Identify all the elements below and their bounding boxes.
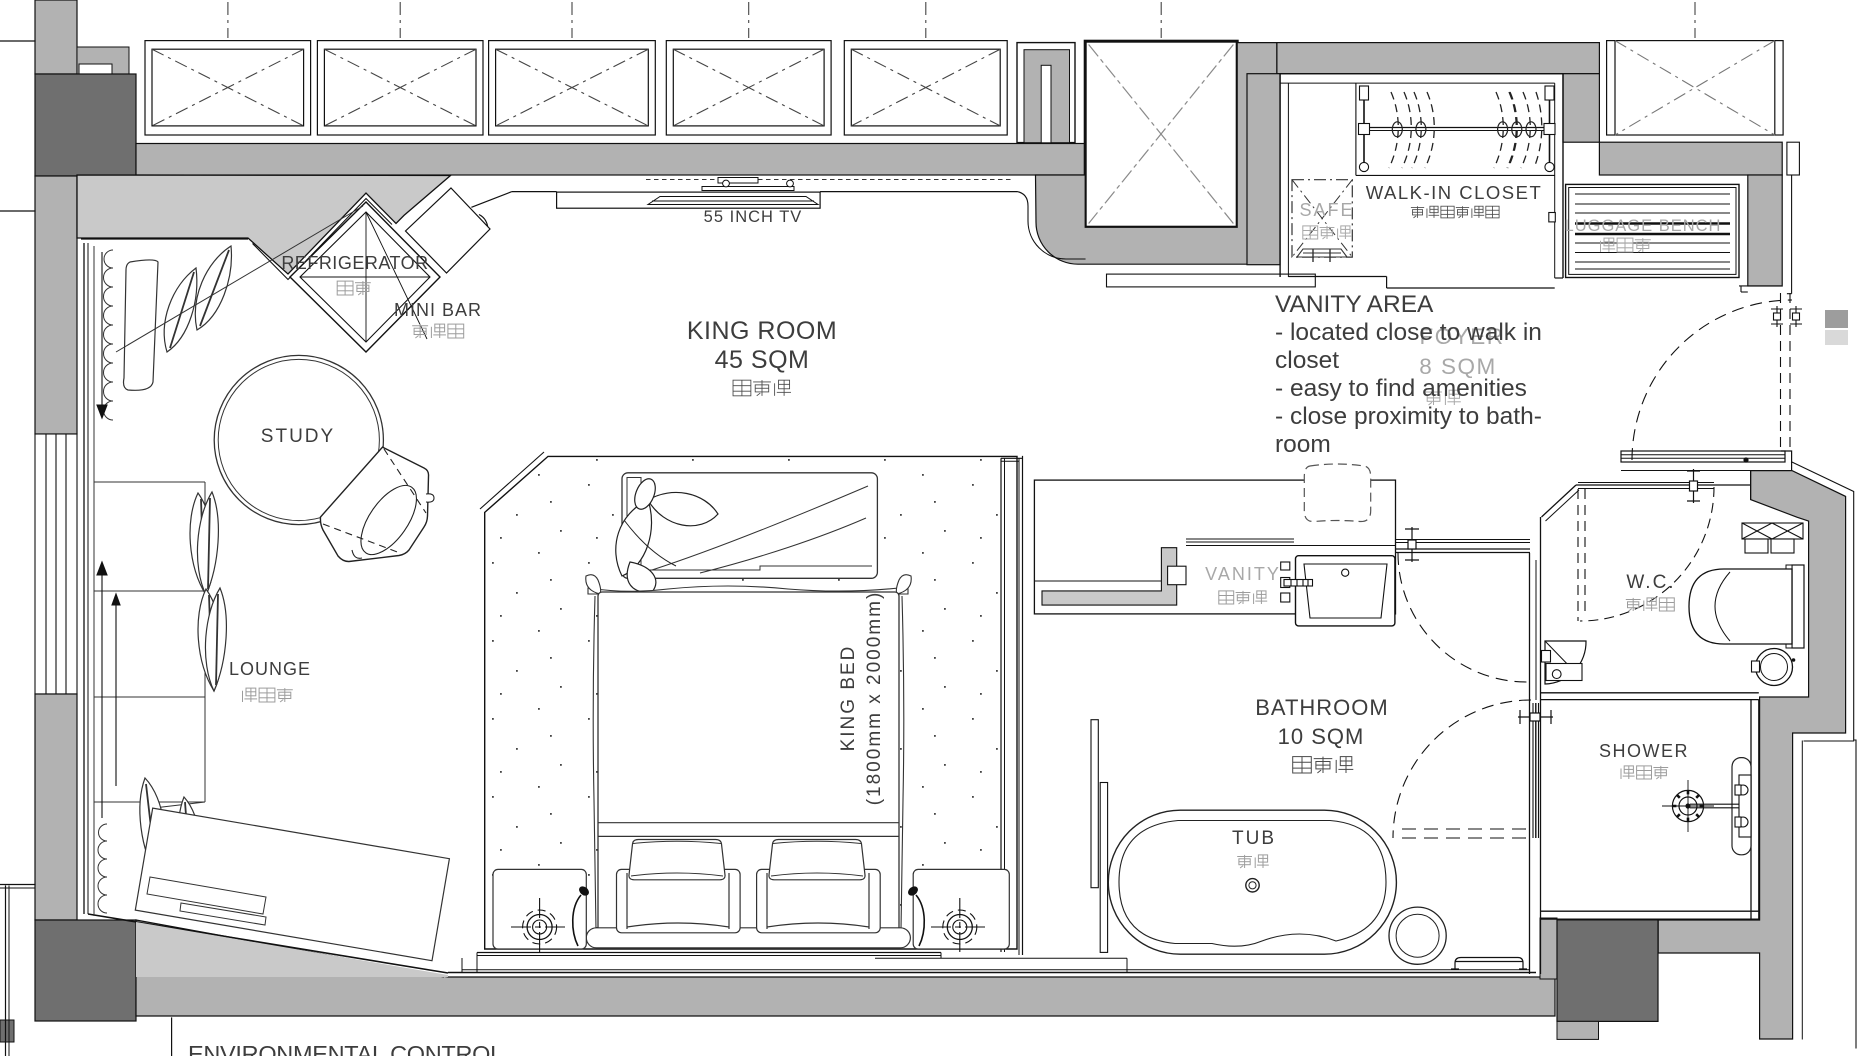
svg-text:- located close to walk in: - located close to walk in — [1275, 319, 1542, 346]
svg-text:BATHROOM: BATHROOM — [1255, 695, 1388, 720]
svg-text:W.C.: W.C. — [1626, 572, 1675, 593]
svg-text:- easy to find amenities: - easy to find amenities — [1275, 375, 1527, 402]
svg-text:room: room — [1275, 431, 1331, 458]
svg-text:LUGGAGE BENCH: LUGGAGE BENCH — [1565, 217, 1722, 235]
svg-text:(1800mm x 2000mm): (1800mm x 2000mm) — [864, 591, 885, 806]
svg-text:45 SQM: 45 SQM — [715, 346, 810, 374]
svg-text:STUDY: STUDY — [261, 426, 335, 447]
svg-text:ENVIRONMENTAL CONTROL: ENVIRONMENTAL CONTROL — [188, 1041, 503, 1056]
svg-text:WALK-IN CLOSET: WALK-IN CLOSET — [1366, 182, 1543, 203]
svg-text:- close proximity to bath-: - close proximity to bath- — [1275, 403, 1542, 430]
svg-text:10 SQM: 10 SQM — [1278, 724, 1365, 749]
svg-text:55 INCH TV: 55 INCH TV — [704, 208, 803, 226]
svg-text:closet: closet — [1275, 347, 1339, 374]
svg-text:VANITY: VANITY — [1205, 564, 1281, 584]
svg-text:KING BED: KING BED — [838, 645, 859, 752]
svg-text:REFRIGERATOR: REFRIGERATOR — [281, 253, 428, 273]
svg-text:SAFE: SAFE — [1299, 200, 1354, 220]
svg-text:MINI BAR: MINI BAR — [394, 300, 482, 320]
svg-text:LOUNGE: LOUNGE — [229, 659, 311, 679]
svg-text:VANITY AREA: VANITY AREA — [1275, 291, 1434, 318]
svg-text:TUB: TUB — [1232, 828, 1276, 849]
svg-text:KING ROOM: KING ROOM — [687, 317, 837, 345]
svg-text:SHOWER: SHOWER — [1599, 741, 1689, 761]
